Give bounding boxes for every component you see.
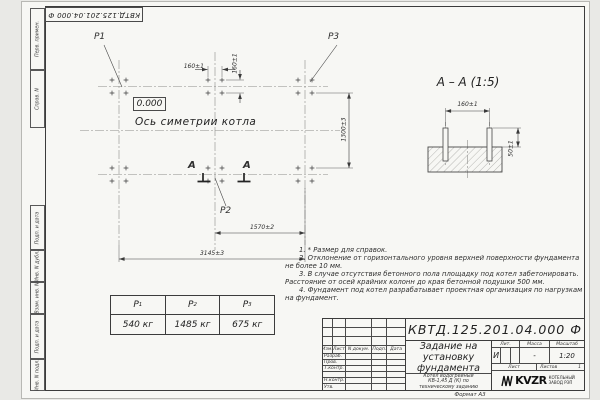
empty-cell bbox=[323, 319, 333, 328]
empty-cell bbox=[346, 384, 373, 390]
lit-label: Лит. bbox=[492, 341, 520, 348]
drawing-title: Задание на установку фундамента bbox=[406, 341, 491, 374]
doc-number: КВТД.125.201.04.000 Ф bbox=[406, 319, 584, 341]
empty-cell bbox=[372, 319, 387, 328]
empty-cell bbox=[511, 348, 520, 364]
lit-mass-scale-header: Лит. Масса Масштаб bbox=[492, 341, 584, 348]
empty-cell bbox=[372, 337, 387, 346]
empty-cell bbox=[346, 319, 373, 328]
dim-full-span: 3145±3 bbox=[192, 250, 232, 257]
boiler-axis-label: Ось симетрии котла bbox=[135, 116, 256, 128]
section-letter-right: А bbox=[243, 160, 251, 171]
dim-section-width: 160±1 bbox=[450, 101, 485, 108]
sheets-value: 1 bbox=[578, 365, 581, 370]
dim-section-height: 50±1 bbox=[508, 134, 515, 164]
technical-notes: 1. * Размер для справок. 2. Отклонение о… bbox=[285, 246, 585, 302]
scanned-technical-drawing: { "page": { "doc_number_rotated": "КВТД.… bbox=[0, 0, 600, 400]
scale-value: 1:20 bbox=[550, 348, 584, 364]
empty-cell bbox=[387, 328, 405, 337]
p3-subscript: 3 bbox=[248, 302, 252, 308]
title-block-main-area: КВТД.125.201.04.000 Ф Задание на установ… bbox=[406, 319, 584, 390]
section-detail bbox=[428, 128, 502, 172]
load-point-p2-label: P2 bbox=[220, 206, 231, 216]
col-ndokum: N докум. bbox=[346, 346, 373, 354]
empty-cell bbox=[387, 384, 405, 390]
empty-cell bbox=[346, 328, 373, 337]
load-point-p1-label: P1 bbox=[94, 32, 105, 42]
empty-cell bbox=[333, 319, 346, 328]
empty-cell bbox=[346, 337, 373, 346]
load-table-header-p3: Р3 bbox=[220, 296, 274, 315]
col-list: Лист bbox=[333, 346, 346, 354]
note-2: 2. Отклонение от горизонтального уровня … bbox=[285, 254, 585, 270]
sign-row: Утв. bbox=[323, 384, 405, 390]
company-name-line2: ЗАВОД РЭП bbox=[549, 380, 573, 385]
dim-half-span: 1570±2 bbox=[242, 224, 282, 231]
col-izm: Изм. bbox=[323, 346, 333, 354]
lit-mass-scale-values: И - 1:20 bbox=[492, 348, 584, 364]
empty-cell bbox=[323, 328, 333, 337]
drawing-name-cell: Задание на установку фундамента Котел во… bbox=[406, 341, 492, 390]
elevation-mark: 0.000 bbox=[133, 97, 166, 111]
dim-row-spacing: 1300±3 bbox=[341, 108, 348, 152]
empty-cell bbox=[387, 319, 405, 328]
p1-subscript: 1 bbox=[139, 302, 143, 308]
empty-cell bbox=[372, 384, 387, 390]
load-point-p3-label: P3 bbox=[328, 32, 339, 42]
load-table-header-row: Р1 Р2 Р3 bbox=[111, 296, 274, 315]
empty-cell bbox=[323, 337, 333, 346]
empty-cell bbox=[333, 337, 346, 346]
load-table: Р1 Р2 Р3 540 кг 1485 кг 675 кг bbox=[110, 295, 275, 335]
section-letter-left: А bbox=[188, 160, 196, 171]
p2-subscript: 2 bbox=[193, 302, 197, 308]
dim-bolt-spacing-h: 160±1 bbox=[170, 63, 204, 70]
revision-row bbox=[323, 319, 405, 328]
load-table-header-p2: Р2 bbox=[166, 296, 221, 315]
anchor-pin-left bbox=[443, 128, 448, 161]
sign-utv: Утв. bbox=[323, 384, 346, 390]
empty-cell bbox=[387, 337, 405, 346]
load-value-p3: 675 кг bbox=[220, 315, 274, 334]
empty-cell bbox=[333, 328, 346, 337]
note-1: 1. * Размер для справок. bbox=[285, 246, 585, 254]
scale-label: Масштаб bbox=[550, 341, 584, 348]
empty-cell bbox=[372, 328, 387, 337]
format-label: Формат А3 bbox=[440, 392, 500, 398]
section-view-title: А – А (1:5) bbox=[420, 75, 516, 89]
sheets-cell: Листов 1 bbox=[537, 364, 584, 371]
revision-header-row: Изм. Лист N докум. Подп. Дата bbox=[323, 346, 405, 354]
title-block-right-area: Лит. Масса Масштаб И - 1:20 Лист Листов … bbox=[492, 341, 584, 390]
col-data: Дата bbox=[387, 346, 405, 354]
anchor-pin-right bbox=[487, 128, 492, 161]
revision-row bbox=[323, 328, 405, 337]
sheet-label: Лист bbox=[492, 364, 537, 371]
empty-cell bbox=[501, 348, 510, 364]
elevation-value: 0.000 bbox=[137, 99, 163, 109]
sheet-row: Лист Листов 1 bbox=[492, 364, 584, 371]
dim-bolt-spacing-v: 160±1 bbox=[232, 47, 239, 81]
company-name: КОТЕЛЬНЫЙ ЗАВОД РЭП bbox=[549, 376, 575, 385]
company-logo: KVZR КОТЕЛЬНЫЙ ЗАВОД РЭП bbox=[492, 371, 584, 390]
col-podp: Подп. bbox=[372, 346, 387, 354]
load-value-p2: 1485 кг bbox=[166, 315, 221, 334]
title-block: Изм. Лист N докум. Подп. Дата Разраб. Пр… bbox=[322, 318, 585, 391]
company-abbr: KVZR bbox=[515, 374, 546, 387]
drawing-subtitle: Котел водогрейный КВ-1,45 Д (К) по техни… bbox=[406, 374, 491, 390]
load-table-value-row: 540 кг 1485 кг 675 кг bbox=[111, 315, 274, 334]
note-4: 4. Фундамент под котел разрабатывает про… bbox=[285, 286, 585, 302]
mass-label: Масса bbox=[520, 341, 550, 348]
load-table-header-p1: Р1 bbox=[111, 296, 166, 315]
note-3: 3. В случае отсутствия бетонного пола пл… bbox=[285, 270, 585, 286]
lit-value: И bbox=[492, 348, 501, 364]
title-block-revision-area: Изм. Лист N докум. Подп. Дата Разраб. Пр… bbox=[323, 319, 406, 390]
mass-value: - bbox=[520, 348, 550, 364]
load-value-p1: 540 кг bbox=[111, 315, 166, 334]
revision-row bbox=[323, 337, 405, 346]
sheets-label: Листов bbox=[540, 365, 557, 370]
coil-icon bbox=[501, 374, 513, 388]
